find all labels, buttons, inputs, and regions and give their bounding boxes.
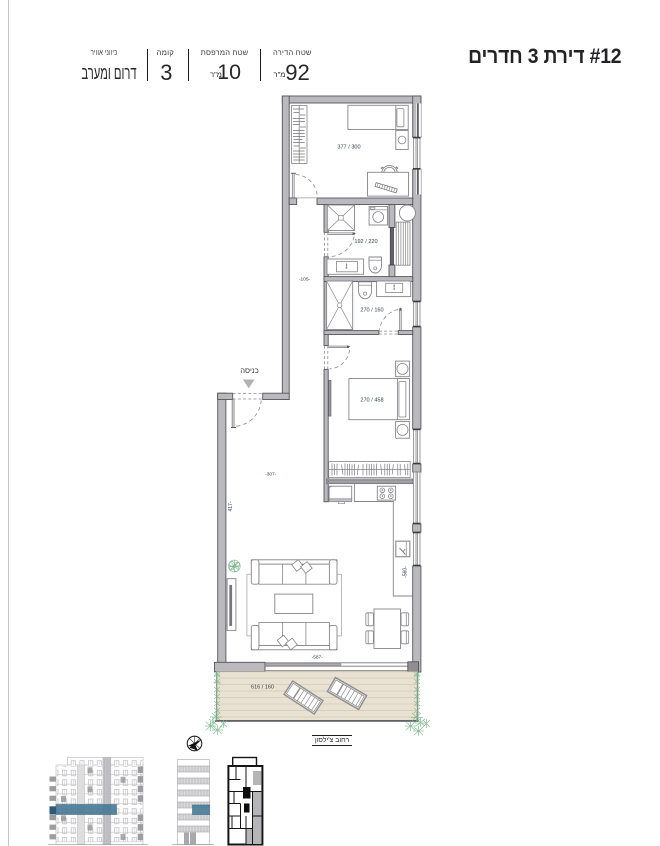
svg-text:417-: 417- xyxy=(228,501,234,511)
svg-text:377 / 300: 377 / 300 xyxy=(337,145,360,151)
svg-text:-587-: -587- xyxy=(312,655,324,661)
svg-text:270 / 458: 270 / 458 xyxy=(360,397,383,403)
svg-text:-307-: -307- xyxy=(265,472,277,478)
svg-text:270 / 160: 270 / 160 xyxy=(360,307,383,313)
svg-text:-105-: -105- xyxy=(299,277,311,283)
svg-text:-560-: -560- xyxy=(403,566,409,578)
svg-text:192 / 220: 192 / 220 xyxy=(354,239,377,245)
svg-text:616 / 160: 616 / 160 xyxy=(251,684,274,690)
